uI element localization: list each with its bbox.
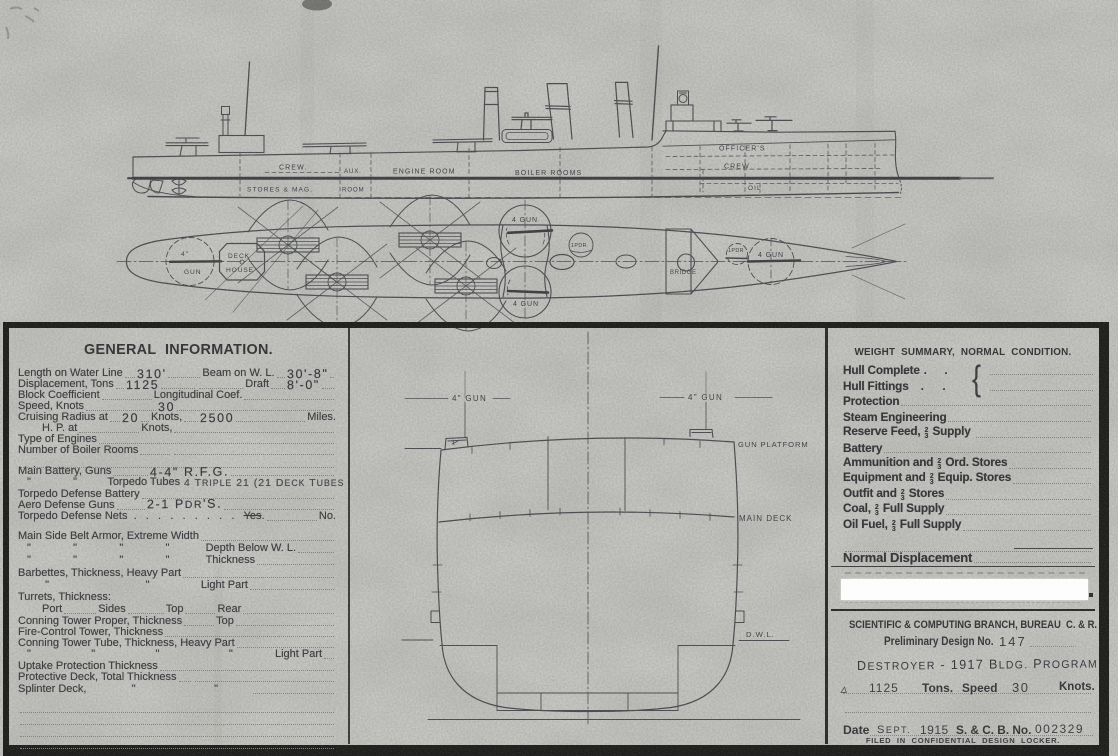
svg-text:4 GUN: 4 GUN [512,217,538,224]
svg-text:OFFICER'S: OFFICER'S [719,146,766,153]
svg-text:MAIN DECK: MAIN DECK [739,514,792,523]
svg-text:D.W.L.: D.W.L. [746,630,775,639]
svg-text:ROOM: ROOM [342,187,364,194]
svg-text:HOUSE: HOUSE [226,267,254,274]
svg-text:OIL: OIL [748,185,762,192]
svg-text:ENGINE ROOM: ENGINE ROOM [393,169,456,176]
svg-text:BRIDGE: BRIDGE [670,270,697,276]
svg-text:4 GUN: 4 GUN [513,301,539,308]
svg-text:STORES & MAG.: STORES & MAG. [247,187,313,194]
svg-text:4" GUN: 4" GUN [452,394,487,403]
svg-text:1PDR: 1PDR [571,243,587,249]
svg-text:CREW: CREW [724,164,750,171]
svg-text:4": 4" [181,251,189,258]
svg-text:GUN: GUN [184,269,201,276]
svg-text:AUX.: AUX. [344,168,362,175]
svg-text:1PDR: 1PDR [728,248,744,254]
svg-text:GUN PLATFORM: GUN PLATFORM [738,440,809,449]
svg-text:DECK: DECK [228,253,250,260]
svg-text:4 GUN: 4 GUN [758,252,784,259]
svg-text:4" GUN: 4" GUN [688,393,723,402]
svg-text:CREW.: CREW. [279,165,307,172]
svg-text:BOILER ROOMS: BOILER ROOMS [515,170,582,177]
